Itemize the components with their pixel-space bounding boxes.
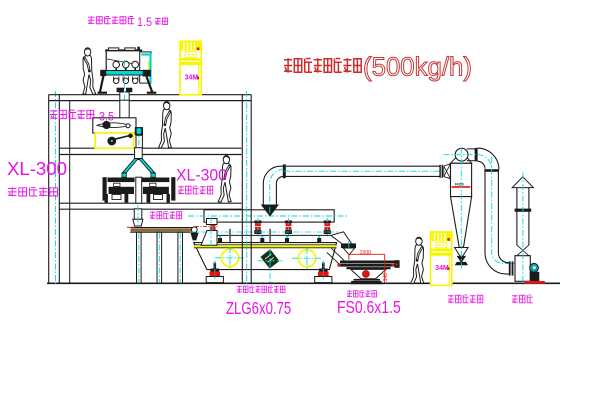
svg-text:FS0.6x1.5: FS0.6x1.5 — [337, 299, 401, 318]
svg-text:XL-300: XL-300 — [176, 166, 227, 185]
svg-text:1.5: 1.5 — [137, 17, 152, 30]
svg-text:XL-300: XL-300 — [7, 158, 67, 179]
svg-text:(500kg/h): (500kg/h) — [363, 54, 472, 82]
svg-text:340: 340 — [383, 273, 389, 282]
svg-text:3.5: 3.5 — [99, 111, 114, 124]
svg-text:ZLG6x0.75: ZLG6x0.75 — [226, 299, 291, 318]
svg-text:FN50: FN50 — [455, 183, 464, 187]
svg-text:1500: 1500 — [360, 250, 372, 256]
